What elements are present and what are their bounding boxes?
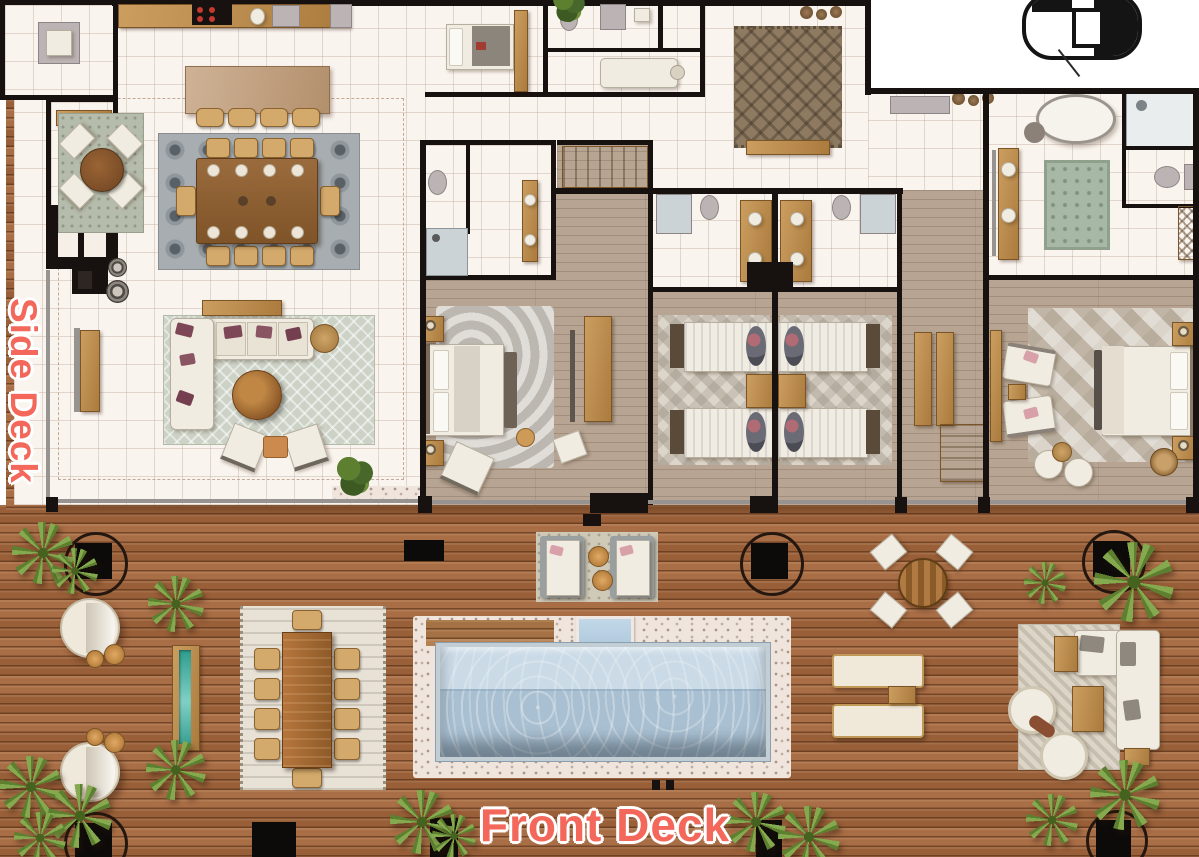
- sofa-cushion: [1120, 642, 1136, 666]
- outdoor-chair: [254, 708, 280, 730]
- duvet-band: [454, 346, 480, 432]
- pouf: [1064, 458, 1093, 487]
- twin-headboard: [670, 324, 684, 368]
- side-table: [104, 732, 125, 753]
- wall-bench: [80, 330, 100, 412]
- wall: [865, 88, 1199, 94]
- water-feature-channel: [179, 650, 191, 744]
- staff-accent: [476, 42, 486, 50]
- place-setting: [291, 226, 304, 239]
- glass-facade: [46, 270, 50, 502]
- palm-tree-icon: [1090, 760, 1160, 830]
- bed-pillow: [433, 350, 449, 390]
- side-table: [86, 650, 104, 668]
- wall-pier: [750, 496, 778, 513]
- outdoor-chair: [334, 678, 360, 700]
- twin-headboard: [866, 410, 880, 454]
- dining-chair: [234, 246, 258, 266]
- place-setting: [263, 164, 276, 177]
- outdoor-chair: [254, 678, 280, 700]
- burner: [209, 7, 215, 13]
- swimming-pool: [436, 643, 770, 761]
- table-lamp: [1178, 326, 1189, 337]
- place-setting: [291, 164, 304, 177]
- round-lounge-chair: [1040, 732, 1088, 780]
- kitchen-island: [185, 66, 330, 114]
- wall: [420, 140, 426, 505]
- side-table: [104, 644, 125, 665]
- side-deck-label: Side Deck: [2, 246, 44, 536]
- glass-facade: [988, 500, 1196, 504]
- twin-headboard: [670, 410, 684, 454]
- fireplace-hearth: [78, 271, 92, 289]
- palm-tree-icon: [52, 548, 98, 594]
- decor-pot: [800, 6, 813, 19]
- bath-rug: [1044, 160, 1110, 250]
- log-basket: [108, 258, 127, 277]
- deck-drain: [583, 514, 601, 526]
- sink: [634, 8, 650, 22]
- bistro-table: [898, 558, 948, 608]
- outdoor-dining-table: [282, 632, 332, 768]
- desk: [584, 316, 612, 422]
- quilt-roll: [746, 326, 766, 366]
- floor-plan: Side Deck Front Deck: [0, 0, 1199, 857]
- sofa-cushion: [1123, 699, 1142, 721]
- wall: [553, 188, 903, 194]
- tray-table: [1052, 442, 1072, 462]
- outdoor-chair: [254, 738, 280, 760]
- sink: [748, 212, 762, 226]
- quilt-roll: [784, 412, 804, 452]
- toilet: [700, 195, 719, 220]
- foyer-console: [746, 140, 830, 155]
- wall-pier: [978, 497, 990, 513]
- staff-pillow: [449, 28, 463, 66]
- massage-table: [600, 58, 678, 88]
- storage-block: [747, 262, 793, 290]
- elevator: [1022, 0, 1142, 60]
- quilt-roll: [784, 326, 804, 366]
- place-setting: [235, 164, 248, 177]
- front-deck-label: Front Deck: [440, 798, 770, 852]
- corridor-bench: [936, 332, 954, 426]
- wall-pier: [46, 497, 58, 512]
- quilt-roll: [746, 412, 766, 452]
- column: [404, 540, 444, 561]
- coffee-table: [232, 370, 282, 420]
- sink: [1001, 162, 1016, 177]
- table-lamp: [425, 320, 436, 331]
- closet-wardrobe: [562, 146, 648, 188]
- column: [252, 822, 296, 857]
- staff-wardrobe: [514, 10, 528, 92]
- oven-pair: [272, 5, 300, 27]
- kitchen-counter: [118, 4, 350, 28]
- throw-pillow: [255, 325, 272, 339]
- wall: [897, 190, 902, 505]
- centerpiece: [238, 196, 248, 206]
- bathtub: [1036, 94, 1116, 144]
- elevator-door: [1072, 8, 1104, 48]
- sun-lounger: [832, 654, 924, 688]
- bar-stool: [228, 108, 256, 127]
- log-basket: [106, 280, 129, 303]
- decor-pot: [968, 95, 979, 106]
- media-console: [990, 330, 1002, 442]
- place-setting: [207, 164, 220, 177]
- sink: [1001, 208, 1016, 223]
- pool-ladder: [666, 780, 674, 790]
- shower-drain: [432, 234, 440, 242]
- toilet: [428, 170, 447, 195]
- side-table: [310, 324, 339, 353]
- dining-chair: [206, 246, 230, 266]
- place-setting: [235, 226, 248, 239]
- coffee-table: [1054, 636, 1078, 672]
- wall: [865, 0, 871, 95]
- palm-tree-icon: [1026, 794, 1078, 846]
- dining-chair: [262, 138, 286, 158]
- bath-vanity: [522, 180, 538, 262]
- side-table: [1008, 384, 1026, 400]
- wall: [772, 190, 778, 505]
- palm-tree-icon: [148, 576, 204, 632]
- vanity-mirror: [992, 150, 996, 256]
- outdoor-chair: [334, 648, 360, 670]
- sink: [524, 194, 536, 206]
- basket: [1150, 448, 1178, 476]
- outdoor-chair: [292, 768, 322, 788]
- palm-tree-icon: [146, 740, 206, 800]
- media-wall: [570, 330, 575, 422]
- bar-stool: [292, 108, 320, 127]
- wall: [1193, 88, 1199, 505]
- shower-stall: [600, 4, 626, 30]
- bed-pillow: [1170, 352, 1188, 390]
- rooms-divider: [545, 48, 705, 52]
- foot-bench: [504, 352, 517, 428]
- nightstand: [778, 374, 806, 408]
- side-table: [592, 570, 613, 591]
- glass-facade: [50, 499, 420, 503]
- bed-pillow: [433, 392, 449, 432]
- sofa-cushion: [1079, 635, 1105, 653]
- wall: [988, 275, 1196, 280]
- rooms-bottom-wall: [425, 92, 705, 97]
- wall-pier: [590, 493, 648, 513]
- coffee-table: [1072, 686, 1104, 732]
- bar-stool: [260, 108, 288, 127]
- shower-head: [1136, 100, 1147, 111]
- table-lamp: [425, 444, 436, 455]
- foyer-rug: [734, 26, 842, 148]
- dining-chair: [206, 138, 230, 158]
- rooms-right-wall: [700, 0, 705, 97]
- toilet: [832, 195, 851, 220]
- pool-ladder: [652, 780, 660, 790]
- kitchen-sink: [250, 8, 265, 25]
- wall: [983, 88, 989, 505]
- palm-tree-icon: [1024, 562, 1066, 604]
- centerpiece: [266, 196, 276, 206]
- shower-tray: [46, 30, 72, 56]
- dining-chair: [320, 186, 340, 216]
- shower-stall: [860, 194, 896, 234]
- duvet-fold: [1102, 346, 1124, 434]
- table-lamp: [1178, 440, 1189, 451]
- ottoman: [263, 436, 288, 458]
- side-table: [888, 686, 916, 704]
- outdoor-chair: [292, 610, 322, 630]
- place-setting: [263, 226, 276, 239]
- pouf: [516, 428, 535, 447]
- throw-pillow: [223, 325, 242, 339]
- burner: [197, 16, 203, 22]
- dining-chair: [176, 186, 196, 216]
- console-table: [202, 300, 282, 316]
- burner: [197, 7, 203, 13]
- outdoor-chair: [254, 648, 280, 670]
- column: [751, 543, 788, 579]
- rooms-divider: [658, 0, 663, 52]
- twin-headboard: [866, 324, 880, 368]
- side-table: [588, 546, 609, 567]
- elevator-shaft: [1032, 0, 1072, 12]
- bath-inner-wall: [466, 142, 470, 234]
- sun-lounger: [832, 704, 924, 738]
- sink: [790, 212, 804, 226]
- place-setting: [207, 226, 220, 239]
- nightstand: [746, 374, 774, 408]
- shower-stall: [656, 194, 692, 234]
- wall-pier: [1186, 497, 1199, 513]
- hall-cabinet: [890, 96, 950, 114]
- tub-stool: [1024, 122, 1045, 143]
- decor-pot: [830, 6, 842, 18]
- wall: [648, 140, 653, 505]
- corridor-cabinet: [940, 424, 984, 482]
- bath-divider: [1126, 146, 1196, 150]
- kitchen-cabinet: [330, 4, 352, 28]
- bed-pillow: [1170, 392, 1188, 430]
- wall-pier: [418, 496, 432, 513]
- dining-chair: [290, 246, 314, 266]
- side-table: [86, 728, 104, 746]
- nook-table: [80, 148, 124, 192]
- palm-tree-icon: [14, 812, 66, 857]
- toilet: [1154, 166, 1180, 188]
- bar-stool: [196, 108, 224, 127]
- outdoor-chair: [334, 738, 360, 760]
- decor-pot: [816, 9, 827, 20]
- foot-bench: [1094, 350, 1102, 430]
- corridor-bench: [914, 332, 932, 426]
- dining-chair: [234, 138, 258, 158]
- dining-chair: [290, 138, 314, 158]
- wall-pier: [895, 497, 907, 513]
- headrest: [670, 65, 685, 80]
- outdoor-chair: [334, 708, 360, 730]
- burner: [209, 16, 215, 22]
- potted-plant: [334, 454, 376, 496]
- wall: [557, 140, 650, 145]
- wall: [652, 287, 897, 292]
- shower-room: [1126, 90, 1196, 150]
- sink: [524, 234, 536, 246]
- dining-chair: [262, 246, 286, 266]
- palm-tree-icon: [1094, 542, 1174, 622]
